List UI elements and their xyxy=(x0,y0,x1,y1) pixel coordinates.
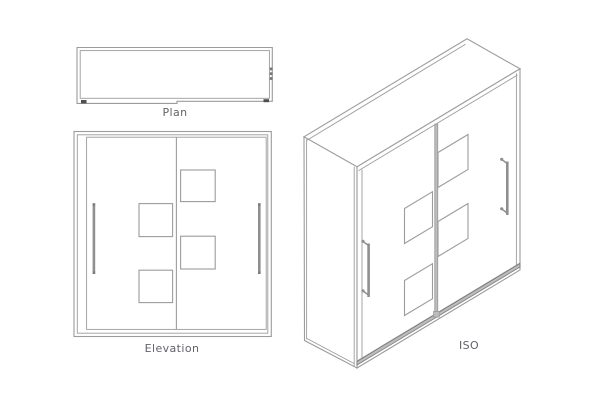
plan-foot-left xyxy=(81,100,87,103)
wardrobe-technical-drawing xyxy=(0,0,600,400)
iso-door-divider xyxy=(435,124,438,312)
iso-divider-foot xyxy=(434,312,440,318)
handle-mount xyxy=(500,158,503,161)
handle-cap xyxy=(93,203,96,206)
handle-mount xyxy=(361,240,364,243)
handle-mount xyxy=(500,207,503,210)
plan-hinge-mark xyxy=(270,72,273,75)
plan-inner-carcass xyxy=(80,51,269,99)
handle-cap xyxy=(93,271,96,274)
elevation-handle-right xyxy=(258,203,261,274)
elevation-panel-square-right-mid xyxy=(181,236,216,269)
plan-foot-right xyxy=(264,99,270,102)
plan-hinge-mark xyxy=(270,77,273,80)
iso-side-face xyxy=(304,137,357,368)
elevation-view-label: Elevation xyxy=(132,342,212,355)
elevation-handle-left xyxy=(93,203,96,274)
plan-outline xyxy=(77,48,272,104)
iso-view-label: ISO xyxy=(439,339,499,352)
elevation-panel-square-right-top xyxy=(181,170,216,202)
plan-hinge-marks xyxy=(270,68,273,80)
iso-view-drawing xyxy=(304,39,520,368)
drawing-canvas: Plan Elevation ISO xyxy=(0,0,600,400)
elevation-panel-square-left-mid xyxy=(139,204,173,237)
plan-view-label: Plan xyxy=(150,106,200,119)
handle-cap xyxy=(258,271,261,274)
handle-mount xyxy=(361,289,364,292)
handle-cap xyxy=(258,203,261,206)
elevation-panel-square-left-bottom xyxy=(139,270,173,302)
plan-view-drawing xyxy=(77,48,272,104)
plan-hinge-mark xyxy=(270,68,273,71)
elevation-view-drawing xyxy=(74,132,271,337)
